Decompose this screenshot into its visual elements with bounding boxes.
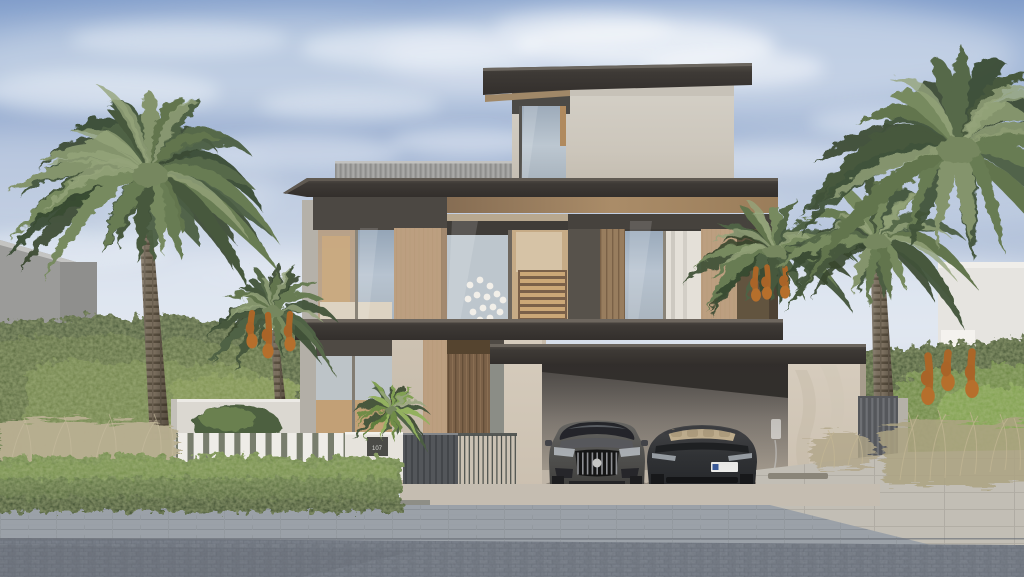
svg-text:107: 107 [372, 446, 383, 452]
